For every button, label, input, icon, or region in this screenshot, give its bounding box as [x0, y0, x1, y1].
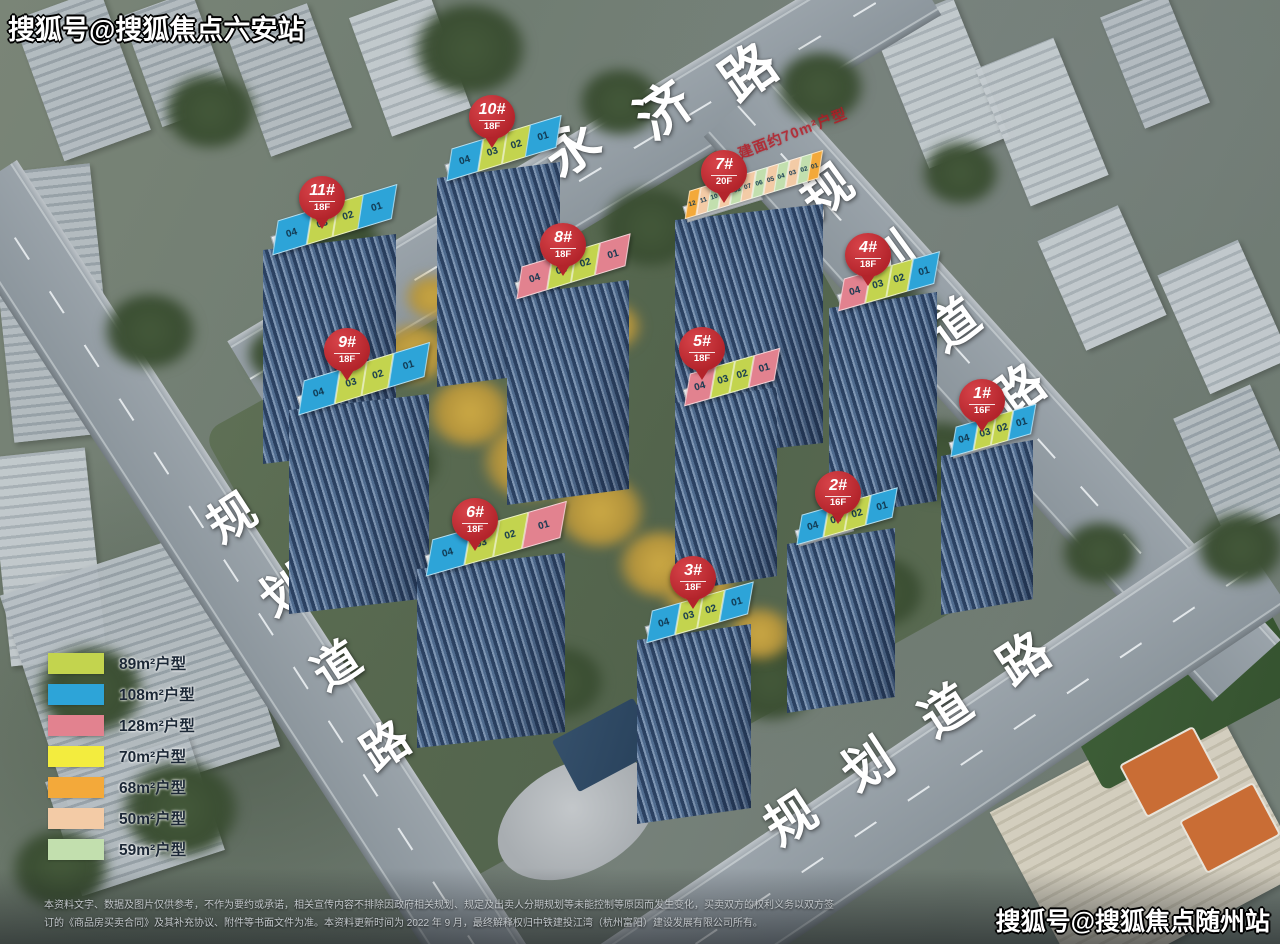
building-floors: 18F	[689, 352, 715, 364]
legend-item: 59m²户型	[48, 838, 195, 860]
building-facade-1#	[941, 440, 1033, 615]
roof-unit-number: 01	[875, 500, 889, 514]
roof-unit: 01	[358, 184, 398, 230]
roof-unit-number: 01	[371, 200, 385, 214]
building-floors: 16F	[825, 496, 851, 508]
roof-unit-number: 04	[528, 271, 542, 285]
roof-unit-number: 01	[917, 265, 931, 279]
building-floors: 18F	[680, 581, 706, 593]
legend-swatch	[48, 653, 104, 674]
building-facade-6#	[417, 553, 565, 748]
building-number: 1#	[973, 386, 991, 402]
building-facade-9#	[289, 394, 429, 614]
roof-unit-number: 04	[657, 616, 671, 630]
roof-unit-number: 02	[704, 602, 718, 616]
roof-unit-number: 02	[504, 528, 518, 542]
building-floors: 16F	[969, 404, 995, 416]
legend-item: 89m²户型	[48, 652, 195, 674]
legend-swatch	[48, 808, 104, 829]
building-floors: 20F	[711, 175, 737, 187]
roof-unit-number: 11	[699, 196, 708, 205]
roof-unit-number: 02	[800, 165, 809, 174]
roof-unit-number: 04	[806, 519, 820, 533]
roof-unit-number: 04	[958, 432, 972, 446]
building-badge-10#: 10#18F	[469, 95, 515, 139]
roof-unit-number: 01	[758, 361, 772, 375]
roof-unit-number: 06	[755, 178, 764, 187]
building-badge-6#: 6#18F	[452, 498, 498, 542]
unit-type-legend: 89m²户型108m²户型128m²户型70m²户型68m²户型50m²户型59…	[48, 652, 195, 869]
roof-unit-number: 02	[995, 421, 1009, 435]
building-floors: 18F	[550, 248, 576, 260]
building-badge-7#: 7#20F	[701, 150, 747, 194]
disclaimer-text: 本资料文字、数据及图片仅供参考，不作为要约或承诺，相关宣传内容不排除因政府相关规…	[44, 897, 924, 932]
legend-label: 89m²户型	[119, 652, 186, 674]
roof-unit-number: 12	[688, 199, 697, 208]
building-badge-2#: 2#16F	[815, 471, 861, 515]
building-number: 3#	[684, 563, 702, 579]
building-badge-8#: 8#18F	[540, 223, 586, 267]
legend-label: 70m²户型	[119, 745, 186, 767]
trees	[1063, 523, 1138, 583]
roof-unit-number: 01	[730, 595, 744, 609]
building-number: 8#	[554, 230, 572, 246]
roof-unit-number: 02	[893, 271, 907, 285]
legend-item: 50m²户型	[48, 807, 195, 829]
legend-item: 70m²户型	[48, 745, 195, 767]
legend-item: 68m²户型	[48, 776, 195, 798]
building-facade-8#	[507, 280, 629, 505]
building-floors: 18F	[479, 120, 505, 132]
trees	[1198, 514, 1280, 582]
legend-swatch	[48, 715, 104, 736]
roof-unit-number: 04	[693, 380, 707, 394]
context-building	[1100, 0, 1210, 129]
roof-unit-number: 04	[285, 226, 299, 240]
watermark-bottom-right: 搜狐号@搜狐焦点随州站	[996, 902, 1270, 938]
context-building	[1037, 205, 1166, 350]
building-floors: 18F	[309, 201, 335, 213]
building-badge-9#: 9#18F	[324, 328, 370, 372]
roof-unit-number: 01	[402, 358, 416, 372]
building-number: 6#	[466, 505, 484, 521]
legend-label: 128m²户型	[119, 714, 195, 736]
building-number: 2#	[829, 478, 847, 494]
legend-item: 128m²户型	[48, 714, 195, 736]
context-building	[1173, 385, 1280, 538]
building-number: 4#	[859, 240, 877, 256]
roof-unit-number: 01	[811, 161, 820, 170]
trees	[165, 75, 255, 147]
roof-unit-number: 02	[509, 138, 523, 152]
roof-unit-number: 02	[371, 368, 385, 382]
trees	[923, 143, 998, 203]
roof-unit-number: 02	[341, 209, 355, 223]
roof-unit-number: 03	[789, 168, 798, 177]
roof-unit-number: 01	[536, 129, 550, 143]
aerial-site-plan: 永济路规划道路规划道路规划道路 0403020110#18F0403020111…	[0, 0, 1280, 944]
building-badge-5#: 5#18F	[679, 327, 725, 371]
legend-swatch	[48, 746, 104, 767]
roof-unit-number: 02	[735, 367, 749, 381]
building-badge-1#: 1#16F	[959, 379, 1005, 423]
roof-unit-number: 05	[766, 175, 775, 184]
building-facade-3#	[637, 624, 751, 824]
legend-swatch	[48, 777, 104, 798]
roof-unit-number: 04	[312, 386, 326, 400]
building-number: 10#	[479, 102, 506, 118]
roof-unit-number: 03	[682, 609, 696, 623]
building-badge-4#: 4#18F	[845, 233, 891, 277]
trees	[415, 5, 525, 93]
trees	[105, 295, 195, 367]
legend-label: 68m²户型	[119, 776, 186, 798]
legend-swatch	[48, 684, 104, 705]
roof-unit-number: 04	[777, 172, 786, 181]
building-floors: 18F	[462, 523, 488, 535]
context-building	[1157, 240, 1280, 395]
roof-unit-number: 04	[848, 284, 862, 298]
building-floors: 18F	[334, 353, 360, 365]
roof-unit-number: 07	[744, 182, 753, 191]
roof-unit-number: 01	[1015, 415, 1029, 429]
building-number: 11#	[309, 183, 335, 199]
legend-label: 59m²户型	[119, 838, 186, 860]
watermark-top-left: 搜狐号@搜狐焦点六安站	[8, 8, 304, 47]
building-badge-3#: 3#18F	[670, 556, 716, 600]
roof-unit-number: 04	[458, 153, 472, 167]
building-floors: 18F	[855, 258, 881, 270]
building-number: 5#	[693, 334, 711, 350]
roof-unit-number: 01	[538, 518, 552, 532]
legend-item: 108m²户型	[48, 683, 195, 705]
legend-label: 50m²户型	[119, 807, 186, 829]
roof-unit-number: 03	[716, 373, 730, 387]
building-number: 7#	[715, 157, 733, 173]
legend-swatch	[48, 839, 104, 860]
building-number: 9#	[338, 335, 356, 351]
disclaimer-line-2: 订的《商品房买卖合同》及其补充协议、附件等书面文件为准。本资料更新时间为 202…	[44, 915, 924, 933]
roof-unit-number: 04	[441, 546, 455, 560]
roof-unit-number: 01	[606, 248, 620, 262]
disclaimer-line-1: 本资料文字、数据及图片仅供参考，不作为要约或承诺，相关宣传内容不排除因政府相关规…	[44, 897, 924, 915]
legend-label: 108m²户型	[119, 683, 195, 705]
building-facade-2#	[787, 528, 895, 713]
building-badge-11#: 11#18F	[299, 176, 345, 220]
